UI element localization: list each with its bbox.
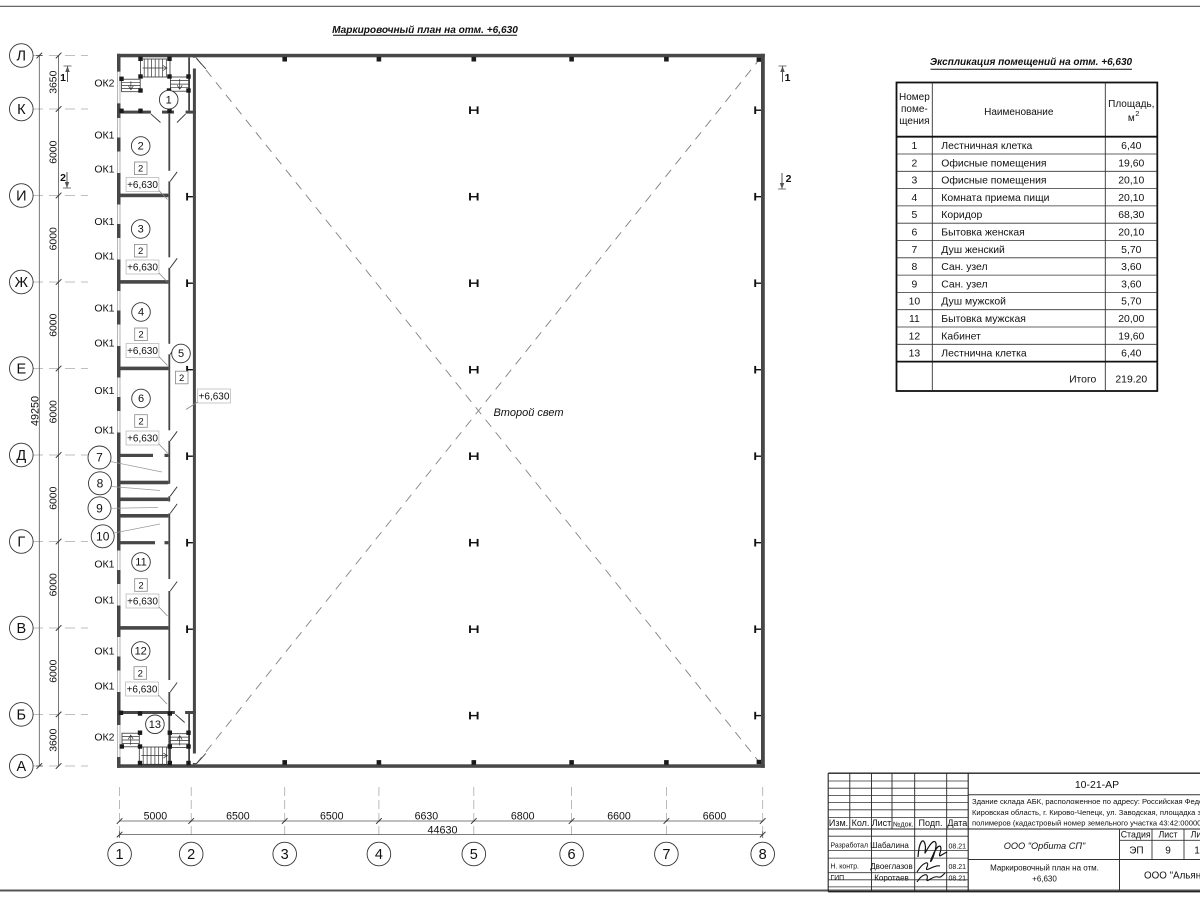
svg-text:13: 13 — [149, 719, 161, 731]
svg-text:3,60: 3,60 — [1121, 262, 1141, 273]
svg-text:6630: 6630 — [415, 810, 439, 822]
svg-text:ГИП: ГИП — [831, 875, 845, 882]
svg-text:+6,630: +6,630 — [199, 392, 230, 403]
svg-text:Бытовка мужская: Бытовка мужская — [941, 314, 1026, 325]
svg-text:4: 4 — [912, 193, 918, 204]
svg-text:+6,630: +6,630 — [127, 434, 158, 445]
svg-text:9: 9 — [1165, 846, 1171, 857]
svg-text:6000: 6000 — [49, 227, 60, 250]
svg-text:щения: щения — [899, 116, 929, 127]
svg-text:Сан. узел: Сан. узел — [941, 279, 987, 290]
svg-text:20,10: 20,10 — [1118, 228, 1144, 239]
svg-text:ОК1: ОК1 — [94, 424, 114, 436]
svg-text:Наименование: Наименование — [984, 107, 1054, 118]
svg-text:Лист: Лист — [872, 818, 892, 828]
svg-text:В: В — [16, 621, 26, 637]
svg-text:2: 2 — [60, 172, 66, 184]
svg-text:8: 8 — [912, 262, 918, 273]
svg-text:4: 4 — [138, 307, 144, 319]
svg-text:Лестнична клетка: Лестнична клетка — [941, 349, 1027, 360]
svg-text:1: 1 — [912, 141, 918, 152]
svg-text:Лестничная клетка: Лестничная клетка — [941, 141, 1032, 152]
svg-text:Душ женский: Душ женский — [941, 245, 1005, 256]
svg-text:1: 1 — [785, 72, 791, 84]
svg-text:поме-: поме- — [901, 104, 928, 115]
svg-text:9: 9 — [96, 501, 103, 515]
svg-text:Стадия: Стадия — [1121, 829, 1151, 839]
svg-text:3650: 3650 — [49, 70, 60, 93]
svg-text:20,10: 20,10 — [1118, 176, 1144, 187]
svg-text:10-21-АР: 10-21-АР — [1075, 779, 1119, 791]
svg-text:+6,630: +6,630 — [127, 180, 158, 191]
svg-text:м: м — [1128, 113, 1135, 124]
svg-text:10: 10 — [909, 297, 921, 308]
svg-text:2: 2 — [786, 173, 792, 185]
svg-text:ОК1: ОК1 — [94, 646, 114, 658]
svg-text:И: И — [16, 189, 26, 205]
svg-text:6600: 6600 — [703, 810, 727, 822]
svg-text:Офисные помещения: Офисные помещения — [941, 175, 1046, 187]
svg-text:2: 2 — [138, 580, 143, 591]
svg-text:8: 8 — [759, 847, 767, 863]
svg-text:6: 6 — [138, 393, 144, 405]
svg-text:ООО "Альянс: ООО "Альянс — [1144, 871, 1200, 882]
svg-text:Ж: Ж — [15, 275, 29, 291]
svg-text:ОК1: ОК1 — [94, 338, 114, 350]
svg-text:6: 6 — [568, 847, 576, 863]
svg-text:5,70: 5,70 — [1121, 245, 1141, 256]
svg-text:9: 9 — [912, 279, 918, 290]
svg-text:3: 3 — [138, 224, 144, 236]
svg-text:6000: 6000 — [49, 140, 60, 163]
svg-text:Комната приема пищи: Комната приема пищи — [941, 193, 1049, 204]
svg-text:Б: Б — [17, 708, 27, 724]
svg-text:Офисные помещения: Офисные помещения — [941, 157, 1046, 169]
svg-text:6000: 6000 — [49, 400, 60, 423]
svg-text:1: 1 — [1194, 846, 1200, 857]
svg-text:19,60: 19,60 — [1118, 158, 1144, 169]
svg-text:А: А — [16, 759, 26, 775]
svg-text:Дата: Дата — [947, 818, 967, 828]
svg-text:ОК1: ОК1 — [94, 595, 114, 607]
svg-text:Ли: Ли — [1191, 829, 1200, 839]
svg-text:ОК1: ОК1 — [94, 385, 114, 397]
svg-text:6800: 6800 — [511, 810, 535, 822]
svg-text:6,40: 6,40 — [1121, 349, 1141, 360]
svg-text:6600: 6600 — [607, 810, 631, 822]
svg-text:2: 2 — [187, 847, 195, 863]
svg-text:12: 12 — [909, 331, 921, 342]
svg-text:68,30: 68,30 — [1118, 210, 1144, 221]
svg-text:11: 11 — [135, 557, 146, 569]
svg-text:ОК1: ОК1 — [94, 216, 114, 228]
svg-text:Номер: Номер — [899, 92, 930, 103]
svg-text:7: 7 — [662, 847, 670, 863]
svg-text:Второй свет: Второй свет — [493, 407, 563, 419]
svg-text:ЭП: ЭП — [1129, 846, 1143, 857]
svg-text:3: 3 — [912, 176, 918, 187]
svg-text:2: 2 — [1135, 109, 1139, 118]
svg-text:7: 7 — [96, 451, 103, 465]
svg-text:Бытовка женская: Бытовка женская — [941, 228, 1025, 239]
svg-text:+6,630: +6,630 — [127, 685, 158, 696]
svg-text:6: 6 — [912, 228, 918, 239]
svg-text:Г: Г — [17, 535, 25, 551]
svg-text:2: 2 — [138, 246, 143, 257]
svg-text:+6,630: +6,630 — [127, 346, 158, 357]
svg-text:Коротаев: Коротаев — [874, 873, 909, 882]
svg-text:ОК1: ОК1 — [94, 303, 114, 315]
svg-text:2: 2 — [138, 164, 143, 175]
svg-text:08.21: 08.21 — [949, 844, 967, 851]
svg-text:Кабинет: Кабинет — [941, 330, 981, 342]
svg-text:6500: 6500 — [320, 810, 344, 822]
svg-text:3600: 3600 — [49, 728, 60, 751]
svg-text:Подп.: Подп. — [919, 818, 943, 828]
svg-text:6,40: 6,40 — [1121, 141, 1141, 152]
svg-text:44630: 44630 — [427, 824, 457, 836]
svg-text:6000: 6000 — [49, 486, 60, 509]
svg-text:Разработал: Разработал — [831, 842, 869, 850]
svg-text:Сан. узел: Сан. узел — [941, 262, 987, 273]
svg-text:11: 11 — [909, 314, 920, 325]
svg-text:Кол.: Кол. — [852, 818, 870, 828]
svg-text:4: 4 — [375, 847, 383, 863]
svg-text:ОК1: ОК1 — [94, 559, 114, 571]
svg-text:2: 2 — [138, 416, 143, 427]
svg-text:Е: Е — [16, 362, 26, 378]
svg-text:ОК1: ОК1 — [94, 681, 114, 693]
svg-text:2: 2 — [138, 141, 144, 153]
svg-text:2: 2 — [138, 668, 143, 679]
svg-text:ОК1: ОК1 — [94, 130, 114, 142]
svg-text:12: 12 — [135, 646, 147, 658]
svg-text:3,60: 3,60 — [1121, 279, 1141, 290]
svg-text:ОК2: ОК2 — [94, 732, 114, 744]
svg-text:10: 10 — [96, 529, 110, 543]
svg-text:6000: 6000 — [49, 313, 60, 336]
svg-text:+6,630: +6,630 — [127, 263, 158, 274]
svg-text:13: 13 — [909, 349, 921, 360]
svg-text:Двоеглазов: Двоеглазов — [870, 862, 913, 871]
svg-text:5: 5 — [470, 847, 478, 863]
svg-text:№док.: №док. — [893, 822, 914, 829]
svg-text:08.21: 08.21 — [949, 864, 967, 871]
svg-text:20,10: 20,10 — [1118, 193, 1144, 204]
svg-text:5: 5 — [178, 348, 184, 360]
svg-text:6500: 6500 — [226, 810, 250, 822]
svg-text:Изм.: Изм. — [829, 818, 848, 828]
svg-text:6000: 6000 — [49, 659, 60, 682]
svg-text:Шабалина: Шабалина — [870, 841, 909, 850]
svg-text:2: 2 — [179, 373, 184, 384]
svg-text:2: 2 — [138, 330, 143, 341]
svg-text:49250: 49250 — [29, 396, 41, 426]
svg-text:7: 7 — [912, 245, 918, 256]
svg-text:Н. контр.: Н. контр. — [831, 864, 860, 871]
svg-text:08.21: 08.21 — [949, 875, 967, 882]
svg-text:Здание склада АБК, расположенн: Здание склада АБК, расположенное по адре… — [972, 797, 1200, 806]
svg-text:5,70: 5,70 — [1121, 297, 1141, 308]
svg-text:6000: 6000 — [49, 573, 60, 596]
svg-text:2: 2 — [912, 158, 918, 169]
svg-text:3: 3 — [281, 847, 289, 863]
svg-text:Л: Л — [17, 49, 27, 65]
svg-text:219.20: 219.20 — [1115, 375, 1147, 386]
svg-text:Маркировочный план на отм. +6,: Маркировочный план на отм. +6,630 — [332, 25, 518, 36]
svg-text:1: 1 — [166, 94, 172, 106]
svg-text:+6,630: +6,630 — [127, 597, 158, 608]
svg-text:Площадь,: Площадь, — [1108, 99, 1154, 110]
svg-text:полимеров (кадастровый номер з: полимеров (кадастровый номер земельного … — [972, 818, 1200, 827]
svg-text:1: 1 — [60, 72, 66, 84]
svg-text:Коридор: Коридор — [941, 210, 982, 221]
svg-text:+6,630: +6,630 — [1032, 875, 1057, 884]
svg-text:Кировская область, г. Кирово-Ч: Кировская область, г. Кирово-Чепецк, ул.… — [972, 808, 1200, 817]
svg-text:20,00: 20,00 — [1118, 314, 1144, 325]
svg-text:К: К — [17, 102, 26, 118]
svg-text:ОК1: ОК1 — [94, 164, 114, 176]
svg-text:Лист: Лист — [1158, 829, 1177, 839]
svg-text:ОК1: ОК1 — [94, 251, 114, 263]
svg-text:ООО "Орбита СП": ООО "Орбита СП" — [1004, 841, 1086, 851]
svg-text:Итого: Итого — [1069, 375, 1096, 386]
svg-text:8: 8 — [97, 476, 104, 490]
svg-text:5: 5 — [912, 210, 918, 221]
svg-text:Экспликация помещений на отм.: Экспликация помещений на отм. +6,630 — [930, 57, 1133, 68]
svg-text:Д: Д — [16, 448, 26, 464]
svg-text:Душ мужской: Душ мужской — [941, 297, 1006, 308]
svg-text:5000: 5000 — [144, 810, 168, 822]
svg-text:Маркировочный план на отм.: Маркировочный план на отм. — [990, 864, 1099, 873]
svg-text:19,60: 19,60 — [1118, 331, 1144, 342]
svg-text:1: 1 — [116, 847, 124, 863]
svg-text:ОК2: ОК2 — [94, 78, 114, 90]
